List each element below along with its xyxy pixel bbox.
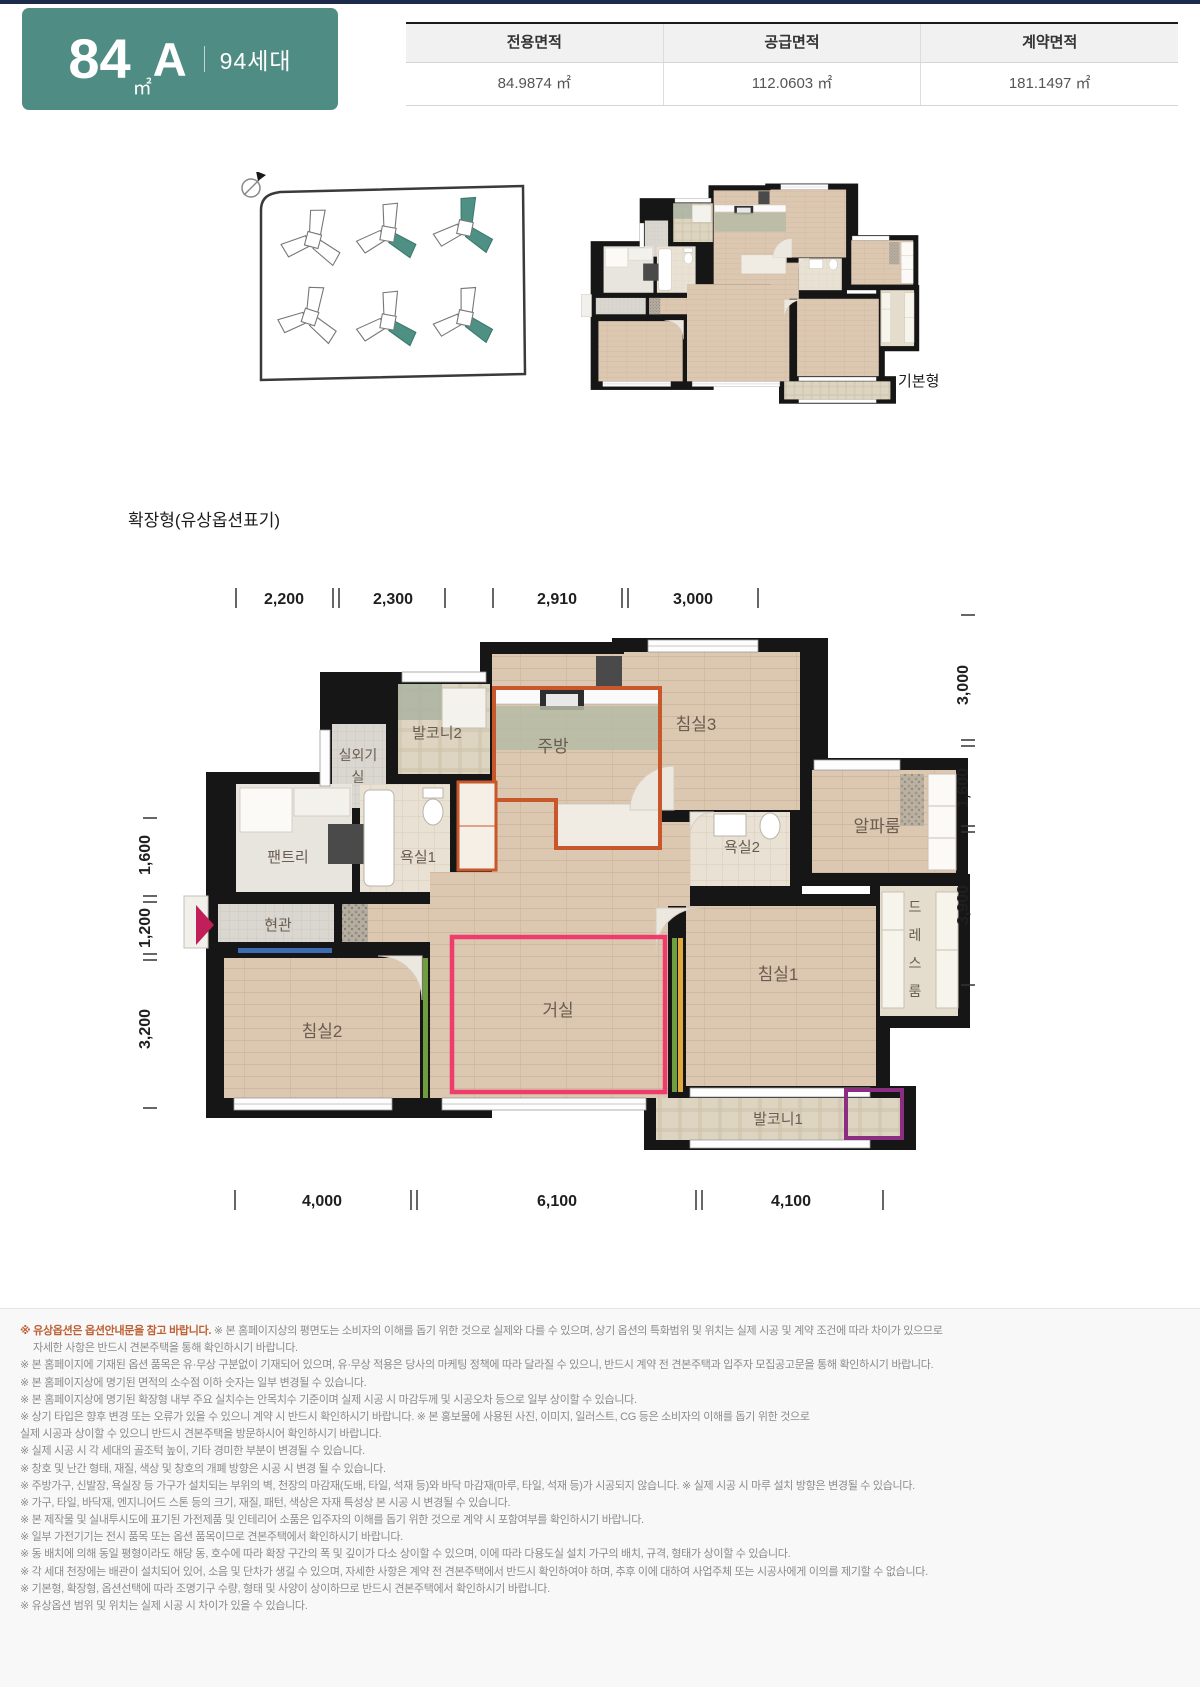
note-lead-rest: ※ 본 홈페이지상의 평면도는 소비자의 이해를 돕기 위한 것으로 실제와 다… [211, 1325, 942, 1337]
room-label-bedroom3: 침실3 [676, 715, 717, 734]
expanded-plan-title: 확장형(유상옵션표기) [128, 506, 280, 531]
note-line: ※ 일부 가전기기는 전시 품목 또는 옵션 품목이므로 견본주택에서 확인하시… [20, 1529, 1180, 1546]
dim-left-1: 1,600 [137, 835, 154, 875]
note-line: ※ 창호 및 난간 형태, 재질, 색상 및 창호의 개폐 방향은 시공 시 변… [20, 1461, 1180, 1478]
area-table: 전용면적 공급면적 계약면적 84.9874 ㎡ 112.0603 ㎡ 181.… [406, 22, 1178, 106]
note-line: ※ 동 배치에 의해 동일 평형이라도 해당 동, 호수에 따라 확장 구간의 … [20, 1546, 1180, 1563]
room-label-kitchen: 주방 [537, 737, 569, 756]
yellow-mark-right [678, 938, 683, 1092]
note-line: ※ 주방가구, 신발장, 욕실장 등 가구가 설치되는 부위의 벽, 천장의 마… [20, 1478, 1180, 1495]
room-label-balcony2: 발코니2 [412, 725, 462, 742]
room-label-dressroom: 드 [909, 899, 922, 915]
note-lead: ※ 유상옵션은 옵션안내문을 참고 바랍니다. [20, 1325, 211, 1337]
note-line: ※ 본 홈페이지상에 명기된 확장형 내부 주요 실치수는 안목치수 기준이며 … [20, 1392, 1180, 1409]
col-contract-area: 계약면적 [920, 24, 1178, 63]
room-label-outdoor-unit: 실외기 [339, 747, 378, 763]
room-label-outdoor-unit2: 실 [352, 769, 365, 785]
note-line: ※ 유상옵션은 옵션안내문을 참고 바랍니다. ※ 본 홈페이지상의 평면도는 … [20, 1323, 1180, 1340]
basic-plan-label: 기본형 [898, 373, 939, 390]
dim-bottom-2: 6,100 [537, 1193, 577, 1210]
top-accent-bar [0, 0, 1200, 4]
note-line: ※ 가구, 타일, 바닥재, 엔지니어드 스톤 등의 크기, 재질, 패턴, 색… [20, 1495, 1180, 1512]
unit-area-number: 84 [68, 31, 130, 87]
room-label-alpha-room: 알파룸 [854, 817, 901, 836]
dim-top-2: 2,300 [373, 591, 413, 608]
badge-divider [204, 46, 205, 72]
note-line: 실제 시공과 상이할 수 있으니 반드시 견본주택을 방문하시어 확인하시기 바… [20, 1426, 1180, 1443]
val-contract-area: 181.1497 ㎡ [920, 63, 1178, 106]
disclaimer-panel: ※ 유상옵션은 옵션안내문을 참고 바랍니다. ※ 본 홈페이지상의 평면도는 … [0, 1308, 1200, 1687]
room-label-living: 거실 [542, 1001, 573, 1020]
note-line: ※ 본 제작물 및 실내투시도에 표기된 가전제품 및 인테리어 소품은 입주자… [20, 1512, 1180, 1529]
site-plan [225, 172, 540, 407]
note-line: ※ 각 세대 천장에는 배관이 설치되어 있어, 소음 및 단차가 생길 수 있… [20, 1564, 1180, 1581]
dim-bottom-1: 4,000 [302, 1193, 342, 1210]
households-count: 94세대 [220, 42, 292, 76]
room-label-bedroom1: 침실1 [758, 965, 799, 984]
room-label-bath1: 욕실1 [400, 849, 436, 866]
dim-left-3: 3,200 [137, 1009, 154, 1049]
dim-top-1: 2,200 [264, 591, 304, 608]
blue-mark-entrance [238, 948, 332, 953]
unit-type-letter: A [153, 36, 187, 83]
dim-top-4: 3,000 [673, 591, 713, 608]
room-label-pantry: 팬트리 [267, 849, 308, 866]
room-label-balcony1: 발코니1 [753, 1111, 803, 1128]
green-mark-left [423, 958, 428, 1098]
basic-type-plan: 기본형 [550, 172, 950, 410]
note-line: ※ 실제 시공 시 각 세대의 골조턱 높이, 기타 경미한 부분이 변경될 수… [20, 1443, 1180, 1460]
area-table-value-row: 84.9874 ㎡ 112.0603 ㎡ 181.1497 ㎡ [406, 63, 1178, 106]
note-line: ※ 본 홈페이지상에 명기된 면적의 소수점 이하 숫자는 일부 변경될 수 있… [20, 1375, 1180, 1392]
dim-top-3: 2,910 [537, 591, 577, 608]
dim-bottom-3: 4,100 [771, 1193, 811, 1210]
compass-icon [242, 172, 266, 197]
unit-type-badge: 84 ㎡ A 94세대 [22, 8, 338, 110]
col-supply-area: 공급면적 [663, 24, 921, 63]
note-line: 자세한 사항은 반드시 견본주택을 통해 확인하시기 바랍니다. [20, 1340, 1180, 1357]
dim-right-2: 1,600 [955, 768, 972, 808]
expanded-floor-plan: 실외기 실 발코니2 주방 침실3 알파룸 욕실1 욕실2 팬트리 현관 침실2… [130, 560, 1010, 1240]
green-mark-right [672, 938, 677, 1092]
dim-right-3: 3,900 [955, 885, 972, 925]
page: 84 ㎡ A 94세대 전용면적 공급면적 계약면적 84.9874 ㎡ 112… [0, 0, 1200, 1687]
val-supply-area: 112.0603 ㎡ [663, 63, 921, 106]
room-label-bedroom2: 침실2 [302, 1022, 343, 1041]
note-line: ※ 상기 타입은 향후 변경 또는 오류가 있을 수 있으니 계약 시 반드시 … [20, 1409, 1180, 1426]
note-line: ※ 본 홈페이지에 기재된 옵션 품목은 유·무상 구분없이 기재되어 있으며,… [20, 1357, 1180, 1374]
note-line: ※ 기본형, 확장형, 옵션선택에 따라 조명기구 수량, 형태 및 사양이 상… [20, 1581, 1180, 1598]
area-table-header-row: 전용면적 공급면적 계약면적 [406, 24, 1178, 63]
note-line: ※ 유상옵션 범위 및 위치는 실제 시공 시 차이가 있을 수 있습니다. [20, 1598, 1180, 1615]
dim-right-1: 3,000 [955, 665, 972, 705]
val-exclusive-area: 84.9874 ㎡ [406, 63, 663, 106]
svg-text:레: 레 [909, 927, 922, 943]
room-label-bath2: 욕실2 [724, 839, 760, 856]
unit-area-unit: ㎡ [133, 73, 152, 100]
room-label-entrance: 현관 [264, 917, 292, 934]
svg-text:스: 스 [909, 955, 922, 971]
svg-text:룸: 룸 [909, 983, 922, 999]
col-exclusive-area: 전용면적 [406, 24, 663, 63]
dim-left-2: 1,200 [137, 908, 154, 948]
